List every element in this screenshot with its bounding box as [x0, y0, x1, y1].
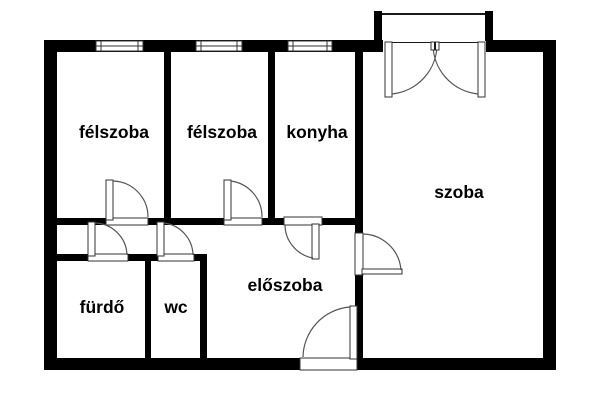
- floor-plan-canvas: félszoba félszoba konyha szoba előszoba …: [0, 0, 600, 400]
- door-felszoba1: [106, 180, 148, 225]
- balcony-double-door: [385, 42, 485, 97]
- window-felszoba1: [96, 41, 143, 51]
- room-label-szoba: szoba: [434, 182, 484, 202]
- room-label-felszoba2: félszoba: [187, 122, 257, 142]
- room-label-konyha: konyha: [286, 122, 348, 142]
- wall-furdo-wc: [145, 261, 151, 358]
- room-label-wc: wc: [163, 297, 188, 317]
- bottom-outer-wall-right: [357, 358, 556, 370]
- wall-wc-eloszoba: [200, 254, 207, 358]
- wall-felszoba2-konyha: [268, 52, 275, 225]
- wall-hallway-d: [322, 218, 355, 225]
- left-outer-wall: [44, 40, 57, 370]
- door-furdo: [88, 222, 128, 261]
- door-konyha: [284, 217, 322, 259]
- door-felszoba2: [224, 180, 262, 225]
- floor-plan: félszoba félszoba konyha szoba előszoba …: [0, 0, 600, 400]
- door-wc: [157, 222, 194, 261]
- balcony-railing-line: [374, 13, 493, 15]
- door-szoba: [355, 233, 402, 275]
- wall-konyha-szoba: [355, 52, 363, 233]
- right-outer-wall: [543, 40, 556, 370]
- door-entrance: [300, 306, 357, 370]
- wall-hallway-a: [50, 218, 106, 225]
- wall-felszoba1-felszoba2: [164, 52, 171, 225]
- window-felszoba2: [196, 41, 242, 51]
- wall-furdo-top: [50, 254, 88, 261]
- room-label-furdo: fürdő: [80, 297, 125, 317]
- window-konyha: [288, 41, 332, 51]
- bottom-outer-wall-left: [44, 358, 300, 370]
- wall-wc-top-left: [128, 254, 158, 261]
- wall-hallway-c: [262, 218, 284, 225]
- room-label-felszoba1: félszoba: [79, 122, 149, 142]
- balcony-wall-right: [485, 11, 493, 41]
- balcony-wall-left: [374, 11, 382, 41]
- room-label-eloszoba: előszoba: [248, 275, 323, 295]
